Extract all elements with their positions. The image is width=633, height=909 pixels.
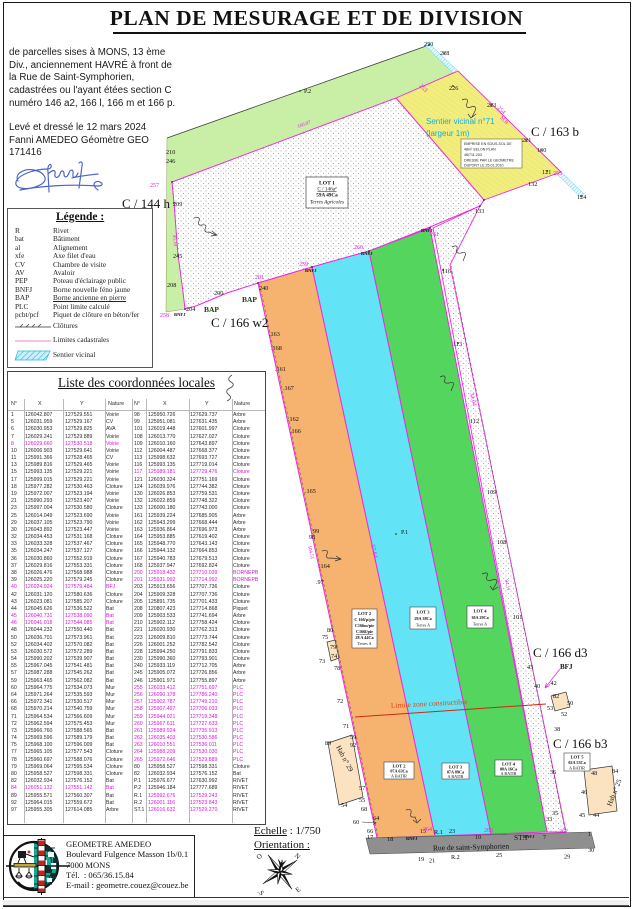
svg-text:48: 48 (591, 770, 597, 777)
svg-text:BNFJ: BNFJ (406, 836, 418, 841)
svg-text:17: 17 (367, 834, 373, 841)
svg-text:P.1: P.1 (401, 530, 408, 536)
svg-text:33: 33 (546, 816, 552, 823)
svg-text:C166l/pie: C166l/pie (356, 629, 373, 634)
svg-text:BNFJ: BNFJ (305, 268, 317, 273)
svg-text:A BATIR: A BATIR (391, 774, 407, 779)
svg-text:.166: .166 (290, 428, 301, 435)
svg-text:53: 53 (547, 705, 553, 712)
svg-text:98: 98 (309, 534, 315, 541)
svg-text:36: 36 (550, 769, 556, 776)
svg-text:55: 55 (359, 797, 365, 804)
svg-text:59: 59 (350, 734, 356, 741)
svg-text:C / 166 b3: C / 166 b3 (553, 736, 608, 751)
svg-text:89: 89 (325, 740, 331, 747)
svg-text:.162: .162 (288, 416, 299, 423)
svg-text:BAP: BAP (242, 295, 257, 304)
svg-text:71: 71 (343, 723, 349, 730)
svg-text:R.1: R.1 (434, 829, 443, 836)
svg-text:.167: .167 (283, 385, 294, 392)
svg-text:109: 109 (487, 489, 496, 496)
svg-text:38: 38 (554, 726, 560, 733)
svg-text:Terres A: Terres A (357, 641, 371, 646)
svg-text:19: 19 (418, 856, 424, 863)
svg-text:64: 64 (373, 815, 379, 822)
svg-text:23: 23 (449, 828, 455, 835)
svg-text:46: 46 (581, 789, 587, 796)
svg-text:57: 57 (359, 785, 365, 792)
svg-text:02A 53Ca: 02A 53Ca (568, 760, 586, 765)
svg-text:29A 38Ca: 29A 38Ca (414, 616, 432, 621)
svg-text:BFJ: BFJ (560, 663, 573, 671)
svg-text:104.51: 104.51 (306, 545, 314, 560)
svg-text:A BATIR: A BATIR (448, 774, 464, 779)
svg-text:R.2: R.2 (451, 854, 460, 861)
svg-text:DRESSE PAR LE GEOMETRE: DRESSE PAR LE GEOMETRE (464, 159, 514, 163)
svg-text:C / 163 b: C / 163 b (531, 124, 579, 139)
svg-text:257: 257 (150, 183, 159, 189)
svg-text:(largeur 1m): (largeur 1m) (426, 129, 470, 138)
svg-text:29: 29 (564, 854, 570, 861)
svg-text:48/711-203: 48/711-203 (464, 153, 482, 157)
svg-text:52: 52 (561, 711, 567, 718)
svg-text:7: 7 (543, 834, 546, 841)
svg-text:Sentier vicinal n°71: Sentier vicinal n°71 (426, 117, 495, 126)
svg-text:124: 124 (577, 194, 586, 201)
svg-text:Terres A: Terres A (473, 622, 487, 627)
svg-text:92: 92 (350, 742, 356, 749)
svg-text:73: 73 (319, 658, 325, 665)
svg-text:43: 43 (527, 664, 533, 671)
svg-text:.97: .97 (316, 579, 324, 586)
svg-text:Terres Agricoles: Terres Agricoles (310, 200, 344, 206)
svg-text:18: 18 (387, 836, 393, 843)
svg-text:82: 82 (553, 693, 559, 700)
svg-text:.164: .164 (319, 563, 330, 570)
svg-text:40: 40 (534, 683, 540, 690)
svg-text:C / 144 h: C / 144 h (122, 196, 171, 211)
svg-text:.161: .161 (275, 366, 286, 373)
svg-text:74: 74 (331, 653, 337, 660)
svg-text:P.2: P.2 (304, 89, 311, 95)
svg-text:60: 60 (353, 819, 359, 826)
svg-text:200: 200 (214, 290, 223, 297)
svg-text:A BATIR: A BATIR (501, 771, 517, 776)
svg-text:209: 209 (173, 201, 182, 208)
svg-text:68: 68 (361, 806, 367, 813)
svg-text:C / 166 w2: C / 166 w2 (211, 315, 268, 330)
svg-text:1: 1 (588, 831, 591, 838)
svg-text:208: 208 (167, 282, 176, 289)
svg-text:35: 35 (552, 810, 558, 817)
svg-text:264: 264 (423, 827, 432, 833)
svg-text:80: 80 (327, 627, 333, 634)
svg-text:C 166/p/pie: C 166/p/pie (354, 617, 375, 622)
svg-text:133: 133 (475, 208, 484, 215)
svg-text:.42: .42 (549, 680, 557, 687)
svg-text:.163: .163 (269, 331, 280, 338)
svg-text:LOT 3: LOT 3 (416, 610, 430, 615)
svg-text:113: 113 (453, 341, 462, 348)
svg-text:59A 49Ca: 59A 49Ca (316, 193, 338, 199)
svg-text:50: 50 (567, 700, 573, 707)
svg-text:204: 204 (186, 306, 195, 313)
svg-text:A BATIR: A BATIR (569, 766, 585, 771)
svg-text:54: 54 (341, 802, 347, 809)
svg-text:LOT 4: LOT 4 (473, 609, 487, 614)
svg-text:BAP: BAP (204, 305, 219, 314)
svg-text:10: 10 (475, 834, 481, 841)
svg-text:LOT 2: LOT 2 (358, 611, 372, 616)
svg-text:75: 75 (322, 634, 328, 641)
svg-text:30: 30 (588, 847, 594, 854)
svg-text:LOT 5: LOT 5 (570, 755, 584, 760)
svg-text:Terres A: Terres A (416, 623, 430, 628)
svg-text:28 A 44Ca: 28 A 44Ca (355, 635, 374, 640)
svg-text:78: 78 (334, 665, 340, 672)
svg-text:84: 84 (612, 768, 618, 775)
svg-text:45: 45 (579, 812, 585, 819)
svg-text:BNFJ: BNFJ (523, 834, 535, 839)
svg-text:263: 263 (484, 828, 493, 834)
svg-text:44: 44 (593, 812, 599, 819)
svg-text:C / 166 d3: C / 166 d3 (533, 645, 588, 660)
svg-text:112: 112 (470, 418, 479, 425)
svg-text:101: 101 (513, 614, 522, 621)
svg-text:DUPONT LE 25.01.2010: DUPONT LE 25.01.2010 (464, 164, 504, 168)
svg-text:201: 201 (255, 275, 264, 281)
svg-text:.165: .165 (305, 488, 316, 495)
svg-text:255: 255 (553, 171, 562, 177)
svg-text:258: 258 (160, 313, 169, 319)
svg-text:72: 72 (337, 698, 343, 705)
svg-text:BNFJ: BNFJ (421, 228, 433, 233)
svg-text:132: 132 (528, 181, 537, 188)
svg-text:210: 210 (166, 149, 175, 156)
svg-text:C166m/pie: C166m/pie (355, 623, 374, 628)
svg-text:79: 79 (330, 644, 336, 651)
svg-text:25: 25 (496, 852, 502, 859)
svg-text:30A 29Ca: 30A 29Ca (471, 615, 489, 620)
svg-text:BNFJ: BNFJ (361, 251, 373, 256)
svg-text:262: 262 (559, 829, 568, 835)
svg-text:48m² SELON PLAN: 48m² SELON PLAN (464, 148, 496, 152)
svg-text:245: 245 (173, 253, 182, 260)
svg-text:121: 121 (542, 169, 551, 176)
svg-text:246: 246 (166, 158, 175, 165)
svg-text:116: 116 (442, 268, 451, 275)
svg-text:21: 21 (429, 858, 435, 865)
svg-text:240: 240 (259, 285, 268, 292)
svg-text:.168: .168 (271, 345, 282, 352)
svg-text:108: 108 (497, 539, 506, 546)
svg-text:EMPRISE EN SOUS-SOL DE: EMPRISE EN SOUS-SOL DE (464, 142, 512, 146)
svg-text:BNFJ: BNFJ (174, 312, 186, 317)
